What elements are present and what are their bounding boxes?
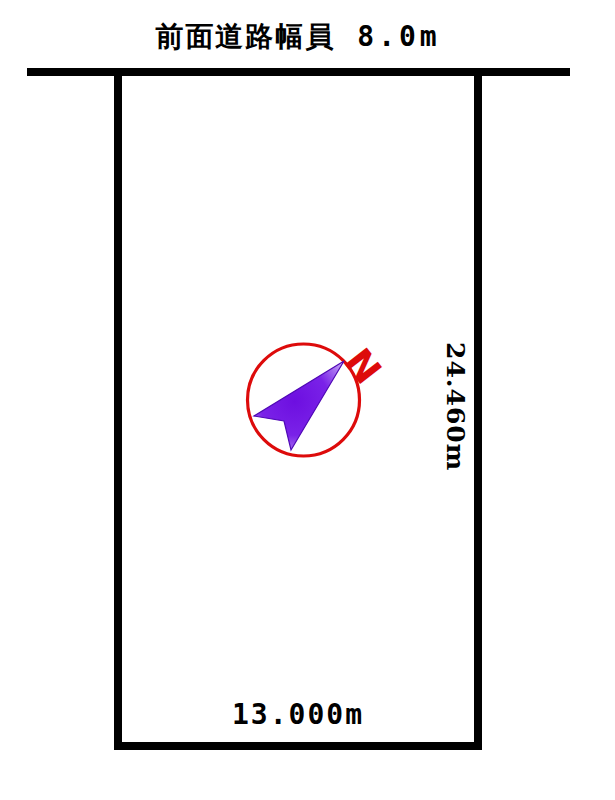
front-road-label-text: 前面道路幅員	[155, 20, 335, 53]
compass: N	[225, 325, 400, 470]
land-plot-diagram: 前面道路幅員8.0m 24.460m 13.000m N	[0, 0, 615, 800]
front-road-value-text: 8.0m	[357, 22, 440, 52]
front-road-width-label: 前面道路幅員8.0m	[114, 22, 482, 52]
north-label: N	[336, 340, 390, 392]
frontage-dimension-label: 13.000m	[114, 700, 482, 730]
north-arrow-icon	[254, 361, 344, 450]
depth-dimension-label: 24.460m	[442, 342, 468, 462]
